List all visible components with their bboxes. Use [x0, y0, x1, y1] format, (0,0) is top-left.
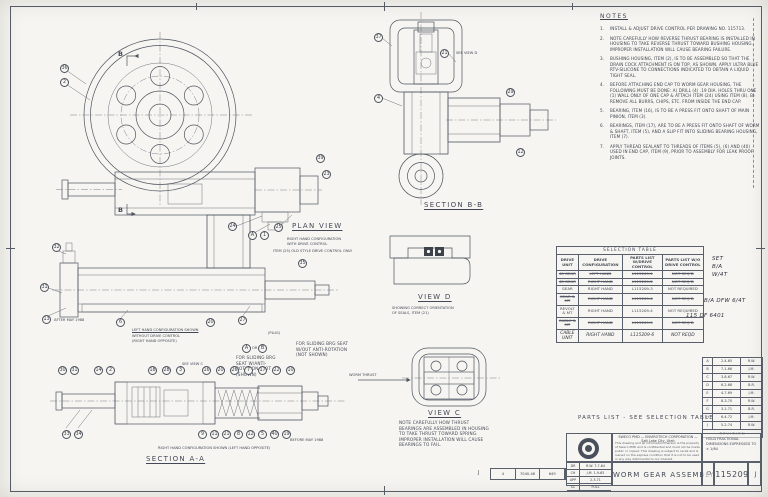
- balloon-callout-36: 36: [60, 64, 69, 73]
- balloon-layer: 36224A12539232137429123113326202735AB303…: [0, 0, 768, 497]
- balloon-callout-12: 12: [246, 430, 255, 439]
- balloon-callout-10: 10: [286, 366, 295, 375]
- balloon-callout-26: 26: [230, 366, 239, 375]
- balloon-callout-19: 19: [282, 430, 291, 439]
- balloon-callout-12: 12: [516, 148, 525, 157]
- balloon-callout-31: 31: [40, 283, 49, 292]
- balloon-callout-30: 30: [58, 366, 67, 375]
- balloon-callout-4: 4: [374, 94, 383, 103]
- balloon-callout-2: 2: [106, 366, 115, 375]
- balloon-callout-2: 2: [60, 78, 69, 87]
- balloon-callout-23: 23: [322, 170, 331, 179]
- balloon-callout-7: 7: [244, 366, 253, 375]
- balloon-callout-28: 28: [162, 366, 171, 375]
- balloon-callout-32: 32: [52, 243, 61, 252]
- balloon-callout-33: 33: [62, 430, 71, 439]
- balloon-callout-22: 22: [272, 366, 281, 375]
- balloon-callout-18: 18: [148, 366, 157, 375]
- balloon-callout-29: 29: [506, 88, 515, 97]
- balloon-callout-14: 14: [94, 366, 103, 375]
- balloon-callout-16: 16: [202, 366, 211, 375]
- balloon-callout-24: 24: [228, 222, 237, 231]
- balloon-callout-31: 31: [70, 366, 79, 375]
- balloon-callout-27: 27: [238, 316, 247, 325]
- balloon-callout-21: 21: [440, 49, 449, 58]
- balloon-callout-25: 25: [274, 223, 283, 232]
- balloon-callout-A: A: [248, 231, 257, 240]
- balloon-callout-20: 20: [216, 366, 225, 375]
- balloon-callout-11: 11: [210, 430, 219, 439]
- balloon-callout-A: A: [242, 344, 251, 353]
- balloon-callout-3: 3: [176, 366, 185, 375]
- balloon-callout-13: 13: [42, 315, 51, 324]
- balloon-callout-35: 35: [298, 259, 307, 268]
- balloon-callout-39: 39: [316, 154, 325, 163]
- balloon-callout-9: 9: [198, 430, 207, 439]
- balloon-callout-B: B: [258, 344, 267, 353]
- balloon-callout-21: 21: [222, 430, 231, 439]
- blueprint-sheet: B B PLAN VIEW RIGHT HAND CONFIGURATION W…: [0, 0, 768, 497]
- balloon-callout-8: 8: [234, 430, 243, 439]
- balloon-callout-17: 17: [258, 366, 267, 375]
- balloon-callout-20: 20: [206, 318, 215, 327]
- balloon-callout-40: 40: [270, 430, 279, 439]
- balloon-callout-5: 5: [258, 430, 267, 439]
- balloon-callout-37: 37: [374, 33, 383, 42]
- balloon-callout-6: 6: [116, 318, 125, 327]
- balloon-callout-1: 1: [260, 231, 269, 240]
- balloon-callout-34: 34: [74, 430, 83, 439]
